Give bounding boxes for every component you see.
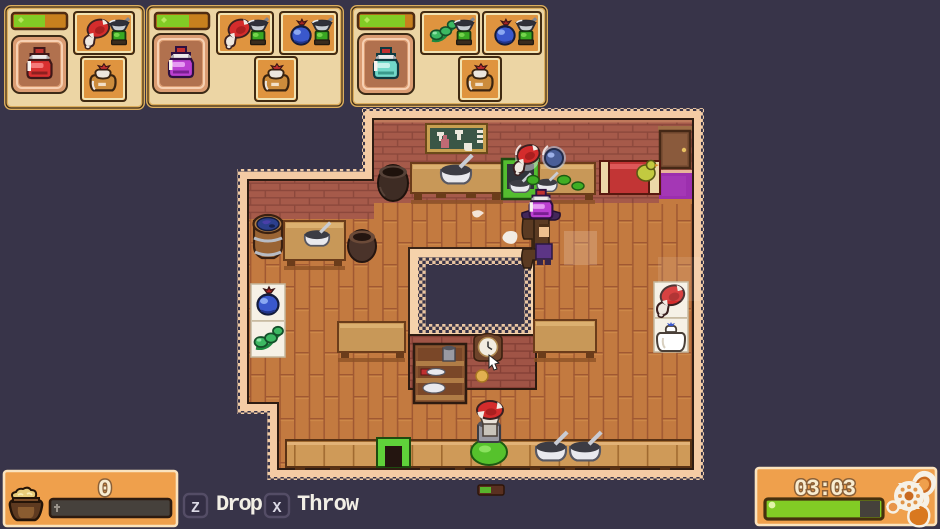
svg-text:Throw: Throw bbox=[297, 492, 360, 517]
svg-text:Drop: Drop bbox=[216, 492, 263, 517]
svg-text:X: X bbox=[272, 500, 281, 517]
svg-text:Z: Z bbox=[191, 500, 200, 517]
